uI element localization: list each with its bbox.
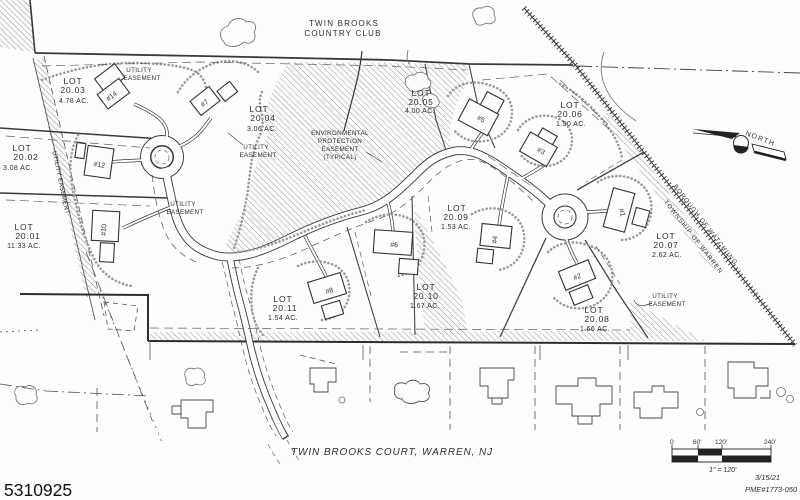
svg-text:1.66 AC.: 1.66 AC. [580, 326, 610, 333]
svg-text:EASEMENT: EASEMENT [239, 152, 276, 159]
svg-text:20.10: 20.10 [413, 291, 438, 301]
svg-text:20.01: 20.01 [15, 231, 40, 241]
svg-text:240': 240' [764, 439, 776, 446]
svg-text:1.53 AC.: 1.53 AC. [441, 224, 471, 231]
svg-text:20.05: 20.05 [408, 97, 433, 107]
svg-text:11.33 AC.: 11.33 AC. [7, 243, 41, 250]
svg-text:60': 60' [693, 439, 701, 446]
svg-text:3/15/21: 3/15/21 [755, 473, 780, 482]
svg-text:EASEMENT: EASEMENT [321, 146, 358, 153]
svg-text:1.50 AC.: 1.50 AC. [556, 121, 586, 128]
svg-text:EASEMENT: EASEMENT [123, 75, 160, 82]
svg-text:120': 120' [715, 439, 727, 446]
svg-text:EASEMENT: EASEMENT [166, 209, 203, 216]
svg-text:20.09: 20.09 [443, 212, 468, 222]
svg-text:4.00 AC.: 4.00 AC. [405, 108, 435, 115]
svg-text:20.07: 20.07 [653, 240, 678, 250]
svg-text:TWIN BROOKS: TWIN BROOKS [309, 19, 379, 28]
svg-text:1" = 120': 1" = 120' [709, 467, 737, 474]
svg-text:1.67 AC.: 1.67 AC. [410, 303, 440, 310]
svg-text:ENVIRONMENTAL: ENVIRONMENTAL [311, 130, 369, 137]
svg-text:#4: #4 [492, 236, 500, 245]
svg-text:NORTH: NORTH [744, 130, 776, 148]
svg-text:(TYPICAL): (TYPICAL) [323, 154, 356, 161]
svg-text:20.02: 20.02 [13, 152, 38, 162]
svg-text:#10: #10 [101, 224, 109, 236]
svg-text:5310925: 5310925 [4, 480, 72, 500]
svg-text:20.04: 20.04 [250, 113, 275, 123]
svg-text:PROTECTION: PROTECTION [318, 138, 362, 145]
svg-text:20.08: 20.08 [584, 314, 609, 324]
svg-text:PME#1773-050: PME#1773-050 [745, 485, 798, 494]
svg-text:UTILITY: UTILITY [170, 201, 196, 208]
svg-text:3.06 AC.: 3.06 AC. [247, 126, 277, 133]
svg-text:UTILITY: UTILITY [652, 293, 678, 300]
svg-text:#6: #6 [390, 242, 398, 250]
svg-text:1.54 AC.: 1.54 AC. [268, 315, 298, 322]
svg-text:EASEMENT: EASEMENT [648, 301, 685, 308]
svg-text:3.08 AC.: 3.08 AC. [3, 165, 33, 172]
svg-text:UTILITY: UTILITY [126, 67, 152, 74]
svg-text:2.62 AC.: 2.62 AC. [652, 252, 682, 259]
svg-text:20.03: 20.03 [60, 85, 85, 95]
svg-text:4.78 AC.: 4.78 AC. [59, 98, 89, 105]
svg-text:20.06: 20.06 [557, 109, 582, 119]
svg-text:COUNTRY CLUB: COUNTRY CLUB [304, 29, 381, 38]
svg-text:TWIN BROOKS COURT, WARREN,: TWIN BROOKS COURT, WARREN, NJ [291, 447, 493, 458]
svg-text:UTILITY: UTILITY [243, 144, 269, 151]
svg-text:20.11: 20.11 [273, 303, 298, 313]
